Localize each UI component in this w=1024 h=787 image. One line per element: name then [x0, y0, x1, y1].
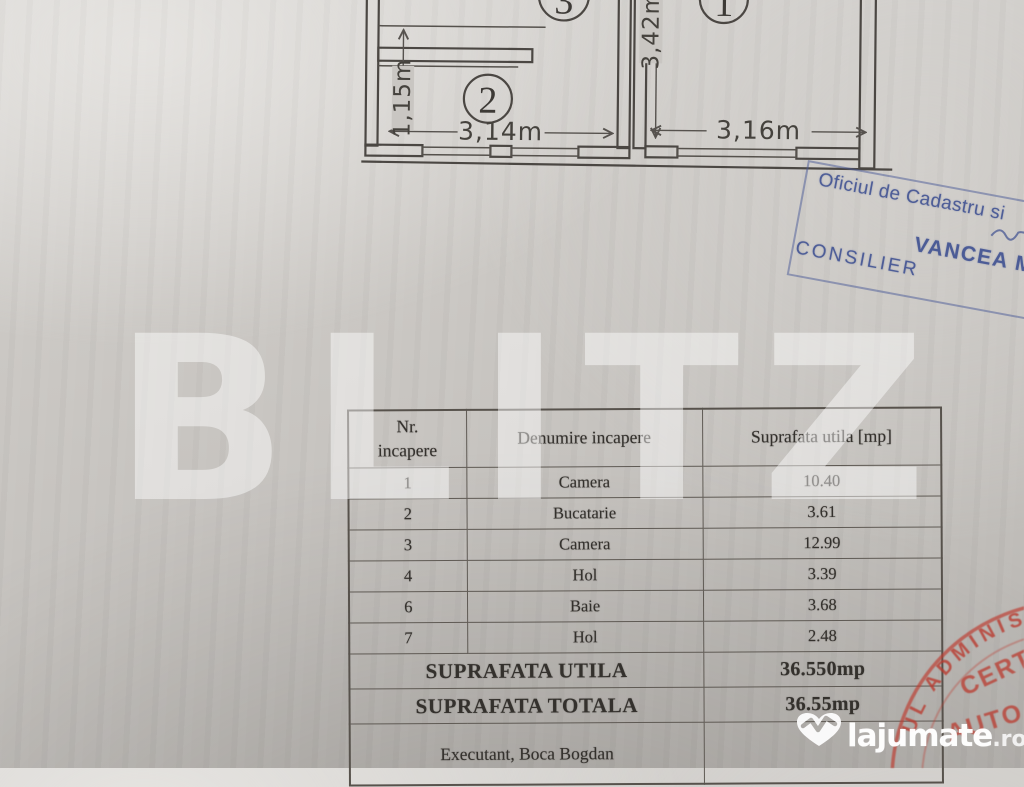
cell-area: 10.40: [702, 465, 941, 497]
cell-name: Hol: [467, 559, 703, 591]
header-nr: Nr. incapere: [348, 410, 466, 468]
lajumate-logo: lajumate .ro: [795, 712, 1024, 754]
cell-nr: 7: [349, 622, 467, 654]
table-row: 3Camera12.99: [349, 527, 942, 561]
executant-cell: Executant, Boca Bogdan: [350, 722, 704, 785]
cell-area: 12.99: [703, 527, 942, 559]
cell-nr: 6: [349, 591, 467, 623]
cell-name: Camera: [467, 528, 703, 560]
dimension-room2-height: 1,15m: [390, 30, 417, 138]
cell-nr: 4: [349, 560, 467, 592]
table-header-row: Nr. incapere Denumire incapere Suprafata…: [348, 407, 941, 468]
window-symbol: [422, 147, 490, 155]
svg-text:3,42m: 3,42m: [638, 0, 665, 70]
svg-text:1,15m: 1,15m: [390, 58, 417, 137]
room-number: 1: [714, 0, 733, 25]
dimension-room1-width: 3,16m: [651, 115, 865, 146]
heart-zigzag-icon: [795, 712, 843, 748]
stamp-role: CONSILIER: [794, 237, 921, 281]
cell-nr: 1: [348, 467, 466, 499]
signature-squiggle: [988, 223, 1024, 249]
window-symbol: [511, 148, 578, 156]
cell-name: Bucatarie: [466, 497, 702, 529]
cell-name: Hol: [467, 621, 703, 653]
total-totala-label: SUPRAFATA TOTALA: [349, 687, 703, 724]
dimension-room2-width: 3,14m: [389, 116, 612, 147]
site-name: lajumate: [847, 718, 992, 754]
total-utila-label: SUPRAFATA UTILA: [349, 652, 703, 689]
svg-text:3,14m: 3,14m: [458, 116, 543, 146]
cell-name: Camera: [466, 466, 702, 498]
table-row: 1Camera10.40: [348, 465, 941, 499]
room-number: 3: [554, 0, 573, 23]
header-denumire: Denumire incapere: [466, 409, 702, 468]
cell-nr: 2: [348, 498, 466, 530]
table-row: 2Bucatarie3.61: [348, 496, 941, 530]
table-row: 4Hol3.39: [349, 558, 942, 592]
svg-text:3,16m: 3,16m: [716, 115, 801, 145]
cell-nr: 3: [349, 529, 467, 561]
site-wordmark: lajumate .ro: [847, 712, 1024, 754]
dimension-room1-height: 3,42m: [638, 0, 665, 137]
scanned-document-photo: { "document": { "floor_plan": { "room_nu…: [0, 0, 1024, 768]
site-tld: .ro: [992, 727, 1024, 752]
cell-area: 3.39: [703, 558, 942, 590]
cell-area: 3.61: [702, 496, 941, 528]
window-symbol: [677, 149, 796, 158]
room-number: 2: [478, 80, 497, 122]
cell-name: Baie: [467, 590, 703, 622]
room-1-label: 1: [700, 0, 748, 25]
room-3-label: 3: [539, 0, 589, 23]
header-suprafata: Suprafata utila [mp]: [702, 407, 941, 466]
